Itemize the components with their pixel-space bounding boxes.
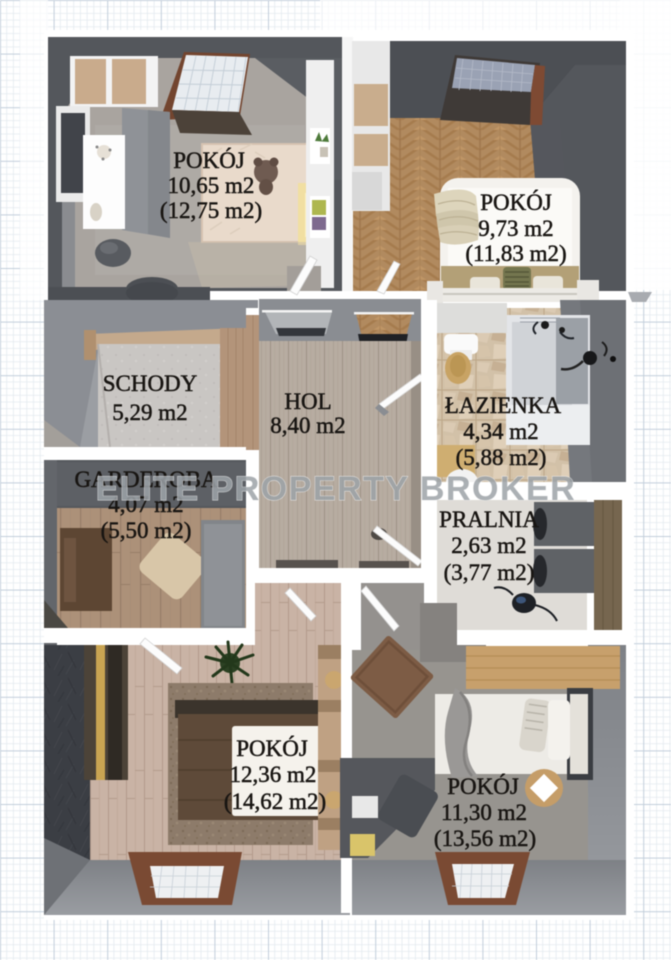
svg-text:10,65 m2: 10,65 m2 (168, 173, 255, 198)
svg-text:ELITE PROPERTY BROKER: ELITE PROPERTY BROKER (96, 470, 577, 508)
svg-text:SCHODY: SCHODY (103, 371, 198, 396)
svg-text:(5,88 m2): (5,88 m2) (456, 445, 547, 470)
svg-text:POKÓJ: POKÓJ (480, 189, 552, 215)
svg-text:(14,62 m2): (14,62 m2) (224, 789, 326, 814)
svg-text:(11,83 m2): (11,83 m2) (465, 241, 566, 266)
svg-text:(12,75 m2): (12,75 m2) (160, 198, 262, 223)
svg-text:(5,50 m2): (5,50 m2) (101, 518, 192, 543)
svg-text:(3,77 m2): (3,77 m2) (444, 560, 535, 585)
svg-text:ŁAZIENKA: ŁAZIENKA (445, 393, 562, 418)
svg-text:POKÓJ: POKÓJ (447, 773, 519, 799)
svg-text:POKÓJ: POKÓJ (173, 147, 245, 173)
svg-text:HOL: HOL (284, 389, 331, 414)
svg-text:POKÓJ: POKÓJ (236, 735, 308, 761)
svg-text:4,34 m2: 4,34 m2 (463, 419, 538, 444)
svg-text:12,36 m2: 12,36 m2 (230, 762, 317, 787)
svg-text:9,73 m2: 9,73 m2 (478, 216, 553, 241)
svg-text:PRALNIA: PRALNIA (439, 507, 539, 532)
svg-text:2,63 m2: 2,63 m2 (451, 533, 526, 558)
svg-text:(13,56 m2): (13,56 m2) (434, 826, 536, 851)
svg-text:5,29 m2: 5,29 m2 (112, 400, 187, 425)
svg-text:11,30 m2: 11,30 m2 (441, 800, 527, 825)
svg-text:8,40 m2: 8,40 m2 (270, 413, 345, 438)
